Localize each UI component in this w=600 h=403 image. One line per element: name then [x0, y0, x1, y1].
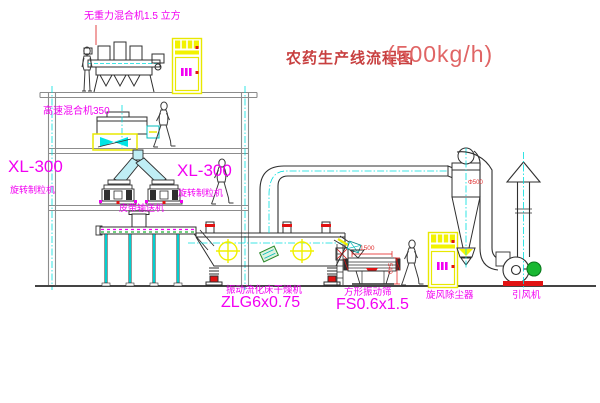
label-high-speed-mixer: 高速混合机350	[43, 107, 110, 117]
induced-draft-fan	[496, 252, 543, 286]
rotary-granulator-left	[99, 185, 137, 204]
label-belt-conveyor: 皮带输送机	[119, 204, 164, 213]
label-fan: 引风机	[512, 291, 541, 301]
dryer-spring-foot	[206, 268, 340, 285]
control-cabinet	[429, 233, 458, 288]
label-xl300-left: XL-300	[8, 158, 63, 175]
control-cabinet	[173, 39, 202, 94]
dryer-exhaust-duct	[260, 166, 458, 233]
y-duct	[108, 150, 174, 184]
building-frame	[40, 92, 257, 285]
vibrating-sieve	[334, 236, 400, 285]
person-figure	[154, 102, 176, 147]
diagram-capacity: (500kg/h)	[387, 43, 493, 66]
dim-sieve-height: 540	[386, 263, 393, 274]
label-granulator-mid: 旋转制粒机	[178, 189, 223, 198]
label-cyclone: 旋风除尘器	[426, 291, 474, 301]
dim-sieve-length: 1500	[360, 246, 374, 253]
fluid-bed-dryer	[188, 222, 352, 285]
drop-pipe	[129, 211, 149, 227]
label-dryer-model: ZLG6x0.75	[221, 295, 300, 311]
dim-cyclone-diameter: Φ500	[468, 180, 483, 186]
label-granulator-left: 旋转制粒机	[10, 186, 55, 195]
label-gravity-mixer: 无重力混合机1.5 立方	[84, 12, 181, 22]
person-figure	[402, 240, 424, 285]
label-xl300-mid: XL-300	[177, 162, 232, 179]
gravity-free-mixer	[84, 25, 164, 92]
label-sieve-model: FS0.6x1.5	[336, 297, 409, 313]
pesticide-line-flow-diagram: 农药生产线流程图 (500kg/h) 无重力混合机1.5 立方 高速混合机350…	[0, 0, 600, 403]
